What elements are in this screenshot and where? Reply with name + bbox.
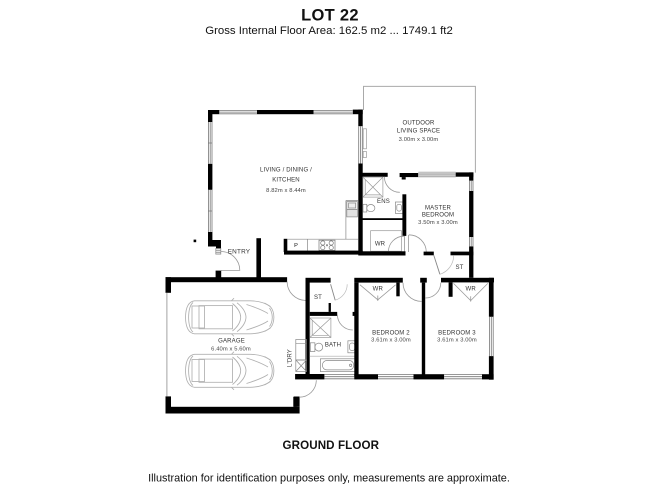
svg-text:3.00m x 3.00m: 3.00m x 3.00m: [399, 137, 439, 143]
svg-text:OUTDOOR: OUTDOOR: [403, 120, 435, 126]
svg-text:BEDROOM 2: BEDROOM 2: [372, 331, 410, 337]
svg-text:GROUND FLOOR: GROUND FLOOR: [283, 439, 380, 452]
svg-text:LIVING / DINING /: LIVING / DINING /: [260, 168, 312, 174]
svg-text:LIVING SPACE: LIVING SPACE: [397, 129, 440, 135]
svg-text:BEDROOM: BEDROOM: [422, 213, 454, 219]
svg-text:ENTRY: ENTRY: [228, 248, 251, 255]
svg-text:3.50m x 3.00m: 3.50m x 3.00m: [418, 220, 458, 226]
svg-text:WR: WR: [375, 242, 386, 248]
svg-text:GARAGE: GARAGE: [218, 338, 245, 344]
svg-text:BEDROOM 3: BEDROOM 3: [438, 331, 476, 337]
svg-text:WR: WR: [373, 287, 384, 293]
svg-text:LOT 22: LOT 22: [301, 7, 359, 25]
svg-text:ST: ST: [314, 295, 322, 301]
svg-text:8.82m x 8.44m: 8.82m x 8.44m: [266, 188, 306, 194]
svg-text:L'DRY: L'DRY: [288, 349, 294, 367]
svg-text:MASTER: MASTER: [425, 206, 452, 212]
svg-text:P: P: [294, 243, 298, 249]
svg-text:Gross Internal Floor Area: 162: Gross Internal Floor Area: 162.5 m2 ... …: [205, 25, 453, 37]
svg-text:KITCHEN: KITCHEN: [272, 178, 300, 184]
svg-text:Illustration for identificatio: Illustration for identification purposes…: [148, 472, 510, 484]
svg-text:6.40m x 5.60m: 6.40m x 5.60m: [211, 346, 251, 352]
svg-text:BATH: BATH: [325, 343, 341, 349]
svg-text:ENS: ENS: [377, 199, 390, 205]
svg-text:3.61m x 3.00m: 3.61m x 3.00m: [371, 338, 411, 344]
svg-text:WR: WR: [466, 287, 477, 293]
svg-text:ST: ST: [455, 265, 463, 271]
svg-text:3.61m x 3.00m: 3.61m x 3.00m: [437, 338, 477, 344]
